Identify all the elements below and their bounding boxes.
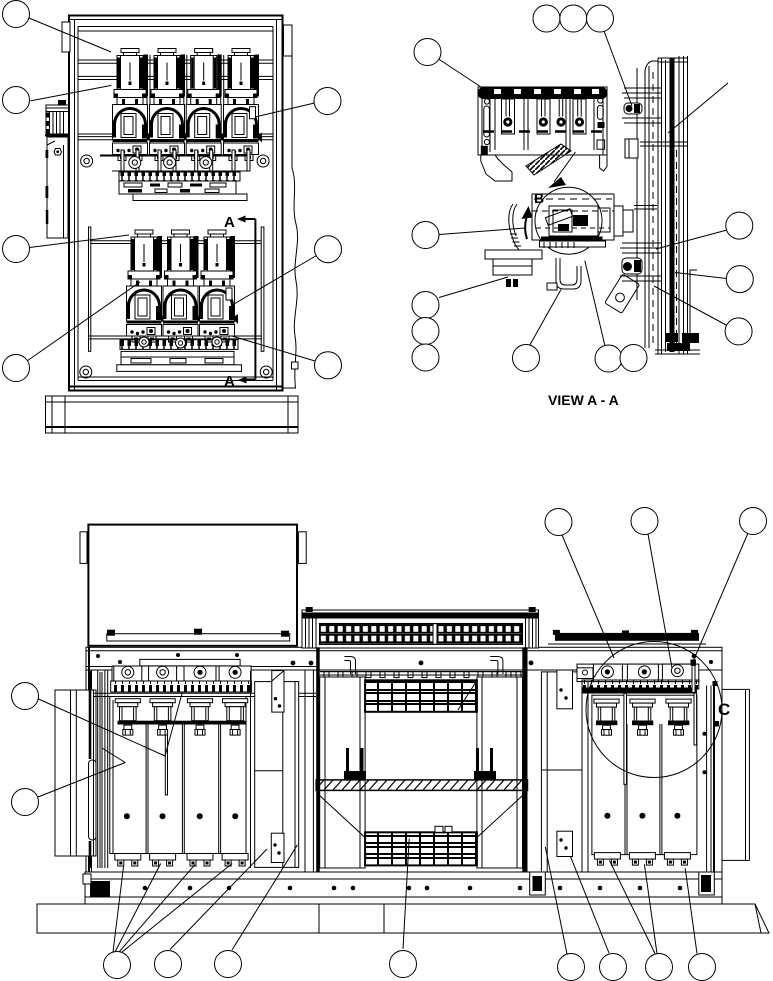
svg-text:A: A bbox=[224, 373, 235, 390]
svg-text:VIEW A - A: VIEW A - A bbox=[548, 392, 619, 408]
svg-text:A: A bbox=[224, 214, 235, 231]
svg-text:C: C bbox=[718, 700, 730, 719]
svg-text:B: B bbox=[534, 190, 544, 206]
